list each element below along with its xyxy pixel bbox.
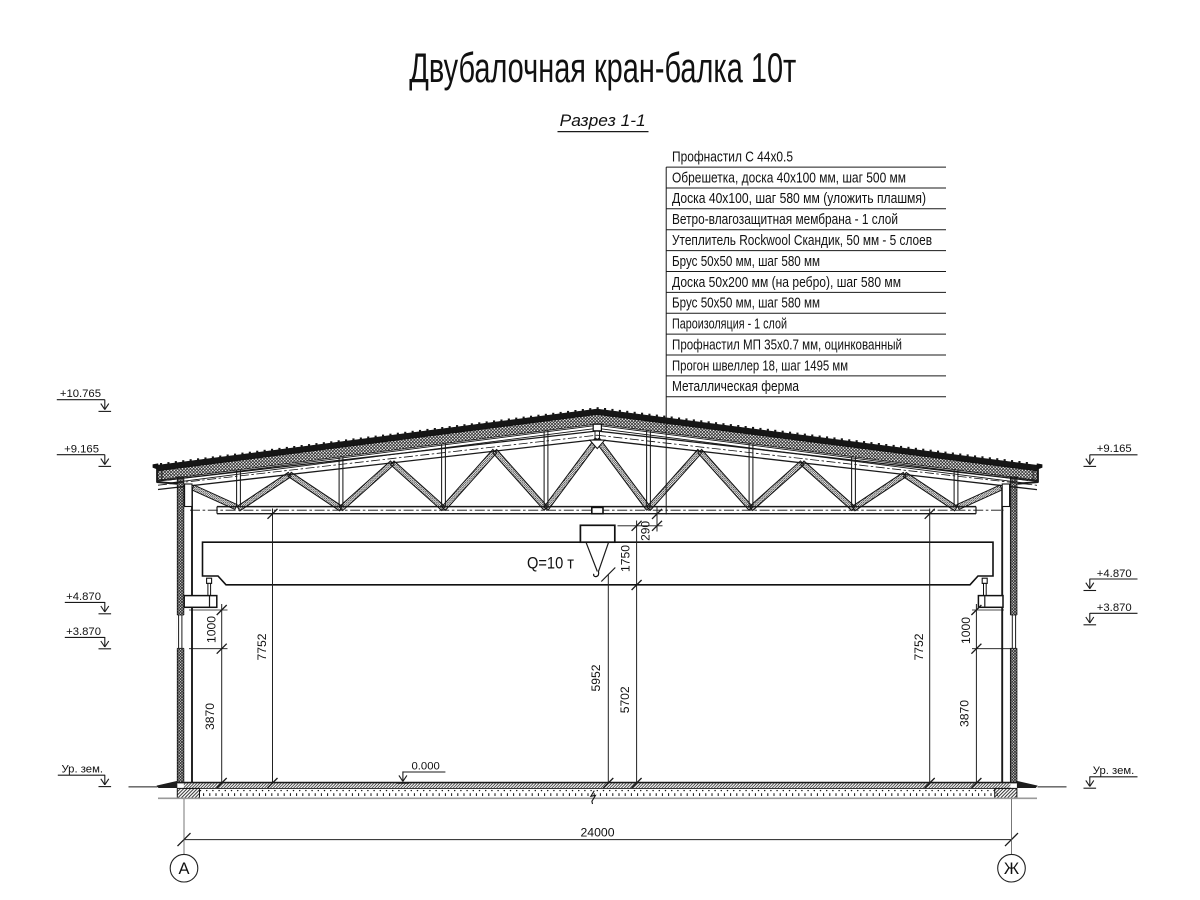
svg-text:Разрез 1-1: Разрез 1-1 (560, 111, 646, 130)
svg-text:Ветро-влагозащитная мембрана -: Ветро-влагозащитная мембрана - 1 слой (672, 212, 898, 228)
svg-text:290: 290 (639, 521, 653, 541)
svg-text:Двубалочная кран-балка 10т: Двубалочная кран-балка 10т (409, 44, 796, 91)
svg-text:+9.165: +9.165 (64, 444, 99, 456)
svg-text:+10.765: +10.765 (60, 388, 101, 400)
svg-text:+4.870: +4.870 (66, 591, 101, 603)
svg-text:Ур. зем.: Ур. зем. (62, 764, 103, 776)
svg-text:А: А (178, 860, 189, 878)
svg-text:Брус 50х50 мм, шаг 580 мм: Брус 50х50 мм, шаг 580 мм (672, 296, 820, 312)
svg-text:Профнастил МП 35х0.7 мм, оцинк: Профнастил МП 35х0.7 мм, оцинкованный (672, 337, 902, 353)
svg-text:3870: 3870 (203, 703, 217, 730)
svg-text:Ж: Ж (1004, 860, 1020, 878)
svg-text:+9.165: +9.165 (1097, 443, 1132, 455)
svg-text:5702: 5702 (618, 686, 632, 713)
svg-text:+3.870: +3.870 (66, 626, 101, 638)
svg-text:7752: 7752 (912, 633, 926, 660)
svg-text:1750: 1750 (619, 545, 633, 572)
svg-text:24000: 24000 (581, 825, 615, 839)
svg-text:Прогон швеллер 18, шаг 1495 мм: Прогон швеллер 18, шаг 1495 мм (672, 358, 848, 374)
svg-text:Утеплитель Rockwool Скандик, 5: Утеплитель Rockwool Скандик, 50 мм - 5 с… (672, 233, 932, 249)
svg-text:Доска 50х200 мм (на ребро), ша: Доска 50х200 мм (на ребро), шаг 580 мм (672, 275, 901, 291)
svg-text:Брус 50х50 мм, шаг 580 мм: Брус 50х50 мм, шаг 580 мм (672, 254, 820, 270)
svg-text:+3.870: +3.870 (1097, 602, 1132, 614)
svg-text:Пароизоляция - 1 слой: Пароизоляция - 1 слой (672, 317, 787, 333)
svg-text:Ур. зем.: Ур. зем. (1093, 765, 1134, 777)
svg-text:7752: 7752 (255, 633, 269, 660)
svg-text:1000: 1000 (204, 616, 218, 643)
svg-text:+4.870: +4.870 (1097, 568, 1132, 580)
svg-text:Q=10 т: Q=10 т (527, 555, 575, 573)
svg-text:1000: 1000 (959, 617, 973, 644)
svg-text:Профнастил С 44х0.5: Профнастил С 44х0.5 (672, 150, 793, 166)
svg-text:3870: 3870 (957, 700, 971, 727)
svg-text:0.000: 0.000 (412, 760, 440, 772)
svg-text:Доска 40х100, шаг 580 мм (улож: Доска 40х100, шаг 580 мм (уложить плашмя… (672, 191, 926, 207)
svg-text:5952: 5952 (589, 664, 603, 691)
svg-text:Обрешетка, доска 40х100 мм, ша: Обрешетка, доска 40х100 мм, шаг 500 мм (672, 170, 906, 186)
svg-text:Металлическая ферма: Металлическая ферма (672, 379, 800, 395)
